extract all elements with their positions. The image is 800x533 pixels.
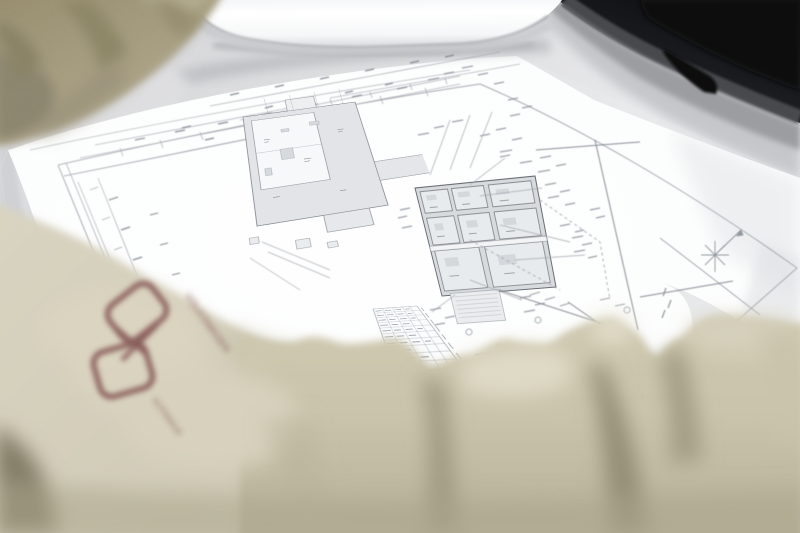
svg-text:AUTOHAUS: AUTOHAUS [150, 396, 183, 437]
svg-text:VOLKSWAGEN: VOLKSWAGEN [182, 291, 232, 355]
